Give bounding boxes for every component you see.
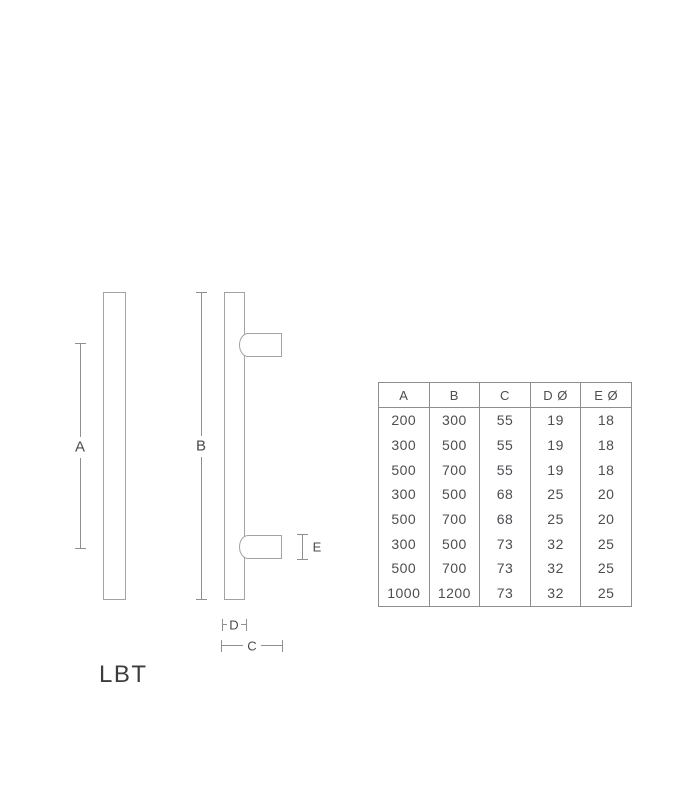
table-header-cell: A <box>379 383 430 408</box>
table-cell: 700 <box>429 556 480 581</box>
table-cell: 500 <box>379 457 430 482</box>
table-cell: 500 <box>429 482 480 507</box>
table-cell: 68 <box>480 482 531 507</box>
table-cell: 700 <box>429 507 480 532</box>
table-row: 200300551918 <box>379 408 632 433</box>
table-cell: 55 <box>480 457 531 482</box>
table-cell: 500 <box>429 433 480 458</box>
table-header-cell: D Ø <box>530 383 581 408</box>
table-cell: 500 <box>429 531 480 556</box>
dim-d-right-tick <box>246 619 247 631</box>
mount-post-bottom <box>239 535 282 559</box>
table-row: 500700551918 <box>379 457 632 482</box>
table-cell: 73 <box>480 581 531 606</box>
table-cell: 32 <box>530 556 581 581</box>
dim-a-line-upper <box>80 343 81 437</box>
table-cell: 19 <box>530 433 581 458</box>
spec-table-body: 2003005519183005005519185007005519183005… <box>379 408 632 607</box>
table-cell: 1200 <box>429 581 480 606</box>
table-cell: 300 <box>379 482 430 507</box>
table-cell: 20 <box>581 482 632 507</box>
table-header-cell: B <box>429 383 480 408</box>
table-cell: 18 <box>581 408 632 433</box>
table-cell: 68 <box>480 507 531 532</box>
table-header-cell: C <box>480 383 531 408</box>
table-cell: 20 <box>581 507 632 532</box>
dim-a-label: A <box>75 440 85 455</box>
dim-d-line-left <box>222 624 227 625</box>
table-cell: 73 <box>480 531 531 556</box>
table-cell: 32 <box>530 581 581 606</box>
table-cell: 25 <box>581 581 632 606</box>
dim-b-bottom-tick <box>196 599 207 600</box>
table-cell: 18 <box>581 457 632 482</box>
table-cell: 25 <box>581 531 632 556</box>
table-cell: 55 <box>480 408 531 433</box>
dim-c-line-right <box>261 645 282 646</box>
mount-post-top <box>239 333 282 357</box>
table-row: 500700682520 <box>379 507 632 532</box>
product-model-label: LBT <box>99 663 148 687</box>
dim-c-right-tick <box>282 640 283 652</box>
table-cell: 32 <box>530 531 581 556</box>
dim-d-label: D <box>229 619 238 632</box>
table-cell: 500 <box>379 507 430 532</box>
dim-b-line-upper <box>201 292 202 436</box>
table-row: 10001200733225 <box>379 581 632 606</box>
spec-table: ABCD ØE Ø 200300551918300500551918500700… <box>378 382 632 607</box>
dim-c-left-tick <box>221 640 222 652</box>
handle-front-view-bar <box>103 292 126 600</box>
table-cell: 300 <box>379 531 430 556</box>
dim-a-line-lower <box>80 458 81 548</box>
table-cell: 18 <box>581 433 632 458</box>
dim-e-line <box>302 534 303 560</box>
spec-table-head: ABCD ØE Ø <box>379 383 632 408</box>
technical-drawing-page: A B E D C LBT ABCD ØE Ø 2003005519183005… <box>0 0 700 794</box>
table-cell: 300 <box>379 433 430 458</box>
dim-a-bottom-tick <box>75 548 86 549</box>
table-cell: 25 <box>530 507 581 532</box>
table-cell: 19 <box>530 408 581 433</box>
table-cell: 73 <box>480 556 531 581</box>
dim-c-line-left <box>221 645 243 646</box>
dim-d-left-tick <box>222 619 223 631</box>
table-cell: 1000 <box>379 581 430 606</box>
dim-e-bottom-tick <box>297 559 308 560</box>
dim-b-label: B <box>196 439 206 454</box>
table-row: 300500733225 <box>379 531 632 556</box>
table-cell: 700 <box>429 457 480 482</box>
table-header-cell: E Ø <box>581 383 632 408</box>
table-row: 500700733225 <box>379 556 632 581</box>
table-cell: 500 <box>379 556 430 581</box>
table-header-row: ABCD ØE Ø <box>379 383 632 408</box>
dim-e-label: E <box>313 541 322 554</box>
table-cell: 25 <box>530 482 581 507</box>
table-cell: 300 <box>429 408 480 433</box>
table-cell: 55 <box>480 433 531 458</box>
dim-c-label: C <box>247 640 256 653</box>
table-cell: 25 <box>581 556 632 581</box>
table-row: 300500551918 <box>379 433 632 458</box>
table-cell: 200 <box>379 408 430 433</box>
table-cell: 19 <box>530 457 581 482</box>
dim-b-line-lower <box>201 457 202 599</box>
table-row: 300500682520 <box>379 482 632 507</box>
